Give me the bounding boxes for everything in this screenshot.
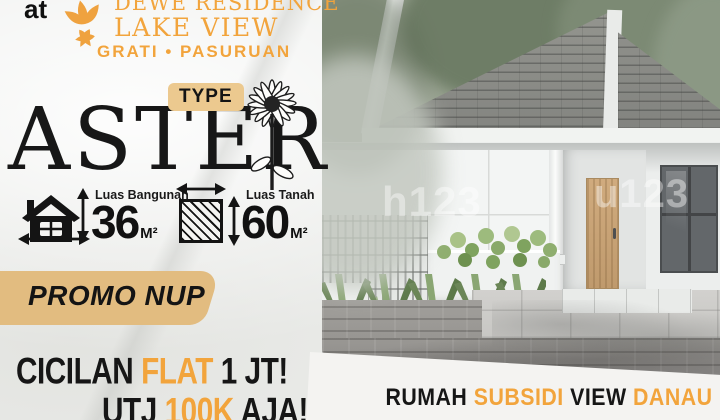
at-label: at: [24, 0, 47, 25]
land-area-number: 60: [241, 204, 288, 242]
flyer-canvas: at DEWE RESIDENCE LAKE VIEW GRATI • PASU…: [0, 0, 720, 420]
offer2-part2: 100K: [165, 390, 234, 420]
offer2-part3: AJA!: [234, 390, 308, 420]
land-width-arrow-icon: [176, 182, 226, 196]
land-area-unit: M²: [290, 225, 308, 242]
land-area-icon: [179, 199, 223, 243]
watermark-text: u123: [594, 172, 689, 217]
offer-line-1: CICILAN FLAT 1 JT!: [16, 350, 288, 393]
caption-part3: VIEW: [564, 383, 633, 411]
location-text: GRATI • PASURUAN: [97, 42, 291, 62]
offer2-part1: UTJ: [102, 390, 165, 420]
aster-flower-icon: [228, 72, 312, 192]
house-render-photo: h123 u123: [322, 0, 720, 392]
height-arrow-icon: [76, 188, 90, 242]
land-area-value: 60 M²: [241, 204, 308, 242]
door-handle: [613, 228, 616, 239]
offer1-part2: FLAT: [141, 350, 213, 391]
watermark-text: h123: [382, 178, 482, 226]
offer1-part1: CICILAN: [16, 350, 141, 391]
building-area-value: 36 M²: [91, 204, 158, 242]
pavement-stains: [492, 300, 720, 360]
offer1-part3: 1 JT!: [213, 350, 288, 391]
brand-subname: LAKE VIEW: [114, 13, 279, 42]
caption-part1: RUMAH: [385, 383, 473, 411]
land-height-arrow-icon: [227, 196, 241, 246]
building-area-number: 36: [91, 204, 138, 242]
offer-line-2: UTJ 100K AJA!: [45, 390, 308, 420]
promo-banner-label: PROMO NUP: [28, 280, 205, 312]
building-area-unit: M²: [140, 225, 158, 242]
caption-part2: SUBSIDI: [474, 383, 564, 411]
caption-part4: DANAU: [633, 383, 712, 411]
round-leaf-shrub: [432, 222, 562, 274]
caption-text: RUMAH SUBSIDI VIEW DANAU: [383, 383, 715, 412]
